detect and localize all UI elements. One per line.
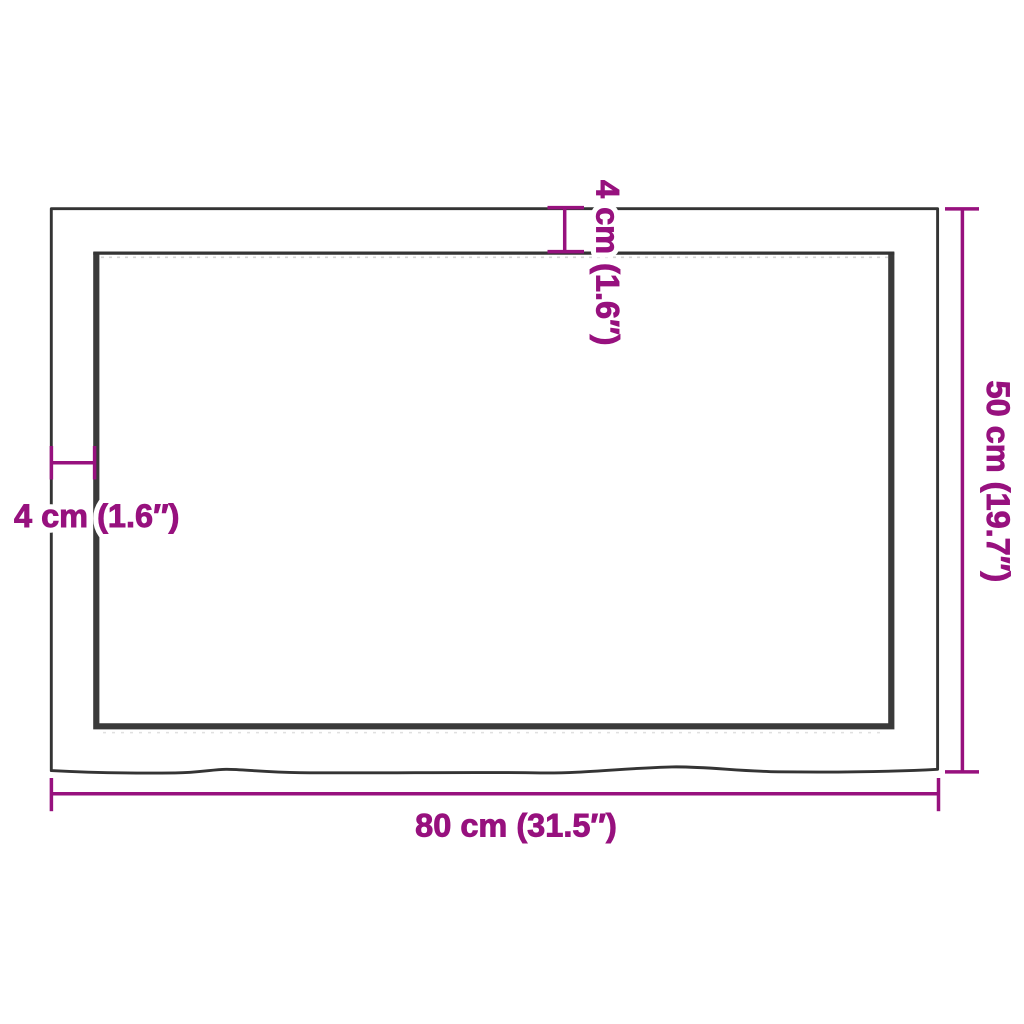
svg-text:4 cm (1.6″): 4 cm (1.6″) xyxy=(14,498,180,534)
svg-text:50 cm (19.7″): 50 cm (19.7″) xyxy=(980,381,1016,583)
svg-text:80 cm (31.5″): 80 cm (31.5″) xyxy=(415,808,617,844)
svg-text:4 cm (1.6″): 4 cm (1.6″) xyxy=(590,180,626,346)
